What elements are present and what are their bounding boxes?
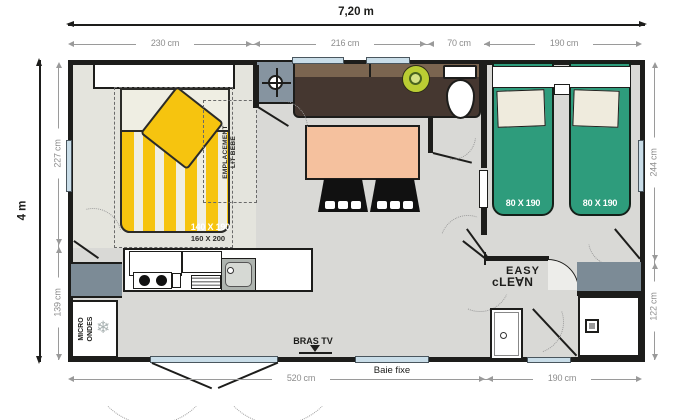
arrow-left-icon: [68, 41, 74, 47]
arrow-down-icon: [36, 356, 42, 364]
dim-left-2: 139 cm: [53, 278, 66, 328]
dim-top-2: 216 cm: [316, 38, 374, 49]
dim-right-2: 122 cm: [649, 282, 662, 332]
microwave-line1: MICRO: [77, 301, 86, 357]
arrow-left-icon: [66, 21, 74, 27]
dim-left-1: 227 cm: [53, 129, 66, 179]
wall-wc-right: [481, 65, 487, 168]
dim-top-3: 70 cm: [434, 38, 484, 49]
chair-1: [318, 179, 368, 212]
wall-master-living: [253, 65, 259, 108]
kitchen-cabinet-2: [182, 251, 222, 273]
tick-icon: [420, 41, 426, 47]
overall-width-label: 7,20 m: [326, 6, 386, 18]
tick-icon: [487, 376, 493, 382]
dim-line-overall-depth: [39, 60, 41, 362]
floor-plan: 140 X 190 160 X 200 EMPLACEMENT LIT BÉBÉ…: [0, 0, 697, 420]
dim-line-overall-width: [68, 24, 645, 26]
arrow-down-icon: [652, 354, 658, 360]
slat: [377, 201, 387, 209]
arrow-right-icon: [636, 41, 642, 47]
dining-table: [305, 125, 420, 180]
bedroom2-door-panel: [479, 170, 488, 208]
tick-icon: [56, 239, 62, 245]
window-left-wall: [66, 140, 72, 192]
tv-arm-line: [299, 352, 332, 354]
twin-pillow-1: [496, 89, 545, 128]
twin-pillow-2: [572, 89, 619, 128]
arrow-right-icon: [639, 21, 647, 27]
drying-rack: [191, 275, 221, 289]
arrow-left-icon: [68, 376, 74, 382]
french-door-swing-right: [215, 299, 341, 420]
dim-top-4: 190 cm: [535, 38, 593, 49]
french-door-swing-left: [89, 299, 215, 420]
stove-burner-1: [139, 275, 150, 286]
slat: [403, 201, 413, 209]
overall-depth-label: 4 m: [17, 191, 32, 231]
baby-cot-area-label: EMPLACEMENT LIT BÉBÉ: [203, 102, 257, 202]
tv-arm-icon: [310, 345, 320, 352]
chair-2-slats: [370, 201, 420, 209]
dim-bottom-1: 520 cm: [272, 373, 330, 384]
chair-2: [370, 179, 420, 212]
tick-icon: [56, 247, 62, 253]
nightstand: [554, 84, 570, 95]
kitchen-sink-bowl: [225, 262, 252, 287]
twin-bed1-size-label: 80 X 190: [496, 198, 550, 208]
chair-1-slats: [318, 201, 368, 209]
fixed-bay-label: Baie fixe: [360, 365, 424, 376]
toilet-cistern: [443, 65, 477, 79]
baby-cot-line1: EMPLACEMENT: [222, 102, 230, 202]
slat: [351, 201, 361, 209]
dim-top-1: 230 cm: [136, 38, 194, 49]
kitchen-faucet: [227, 267, 234, 274]
baby-cot-line2: LIT BÉBÉ: [230, 102, 238, 202]
tick-icon: [652, 255, 658, 261]
fixed-bay-window: [355, 356, 429, 363]
arrow-down-icon: [56, 354, 62, 360]
double-bed-size-label: 140 X 190: [158, 222, 230, 232]
tick-icon: [484, 41, 490, 47]
slat: [338, 201, 348, 209]
window-right-wall: [638, 140, 644, 192]
tick-icon: [479, 376, 485, 382]
bed-alt-size-label: 160 X 200: [181, 234, 235, 243]
dim-right-1: 244 cm: [649, 138, 662, 188]
arrow-up-icon: [56, 62, 62, 68]
stove-burner-2: [156, 275, 167, 286]
slat: [325, 201, 335, 209]
window-top-sofa-left: [292, 57, 344, 64]
tick-icon: [254, 41, 260, 47]
wardrobe: [93, 63, 235, 89]
shower-drain-inner: [589, 323, 595, 329]
bathroom-cabinet: [577, 262, 641, 291]
left-storage-cabinet: [71, 262, 122, 298]
tick-icon: [652, 263, 658, 269]
crosshair-vline: [276, 68, 278, 97]
twin-bed2-size-label: 80 X 190: [573, 198, 627, 208]
stove-ignition: [172, 273, 181, 288]
arrow-up-icon: [652, 62, 658, 68]
arrow-up-icon: [36, 58, 42, 66]
window-top-sofa-right: [366, 57, 410, 64]
window-bathroom-bottom: [527, 357, 571, 363]
sofa-cushion-divider: [369, 64, 371, 77]
neck-pillow-center: [409, 72, 422, 85]
easy-clean-logo: EASY cLE∀N: [490, 266, 556, 304]
slat: [390, 201, 400, 209]
arrow-right-icon: [636, 376, 642, 382]
tick-icon: [246, 41, 252, 47]
dim-bottom-2: 190 cm: [533, 373, 591, 384]
easy-clean-line2: cLE∀N: [492, 276, 556, 288]
